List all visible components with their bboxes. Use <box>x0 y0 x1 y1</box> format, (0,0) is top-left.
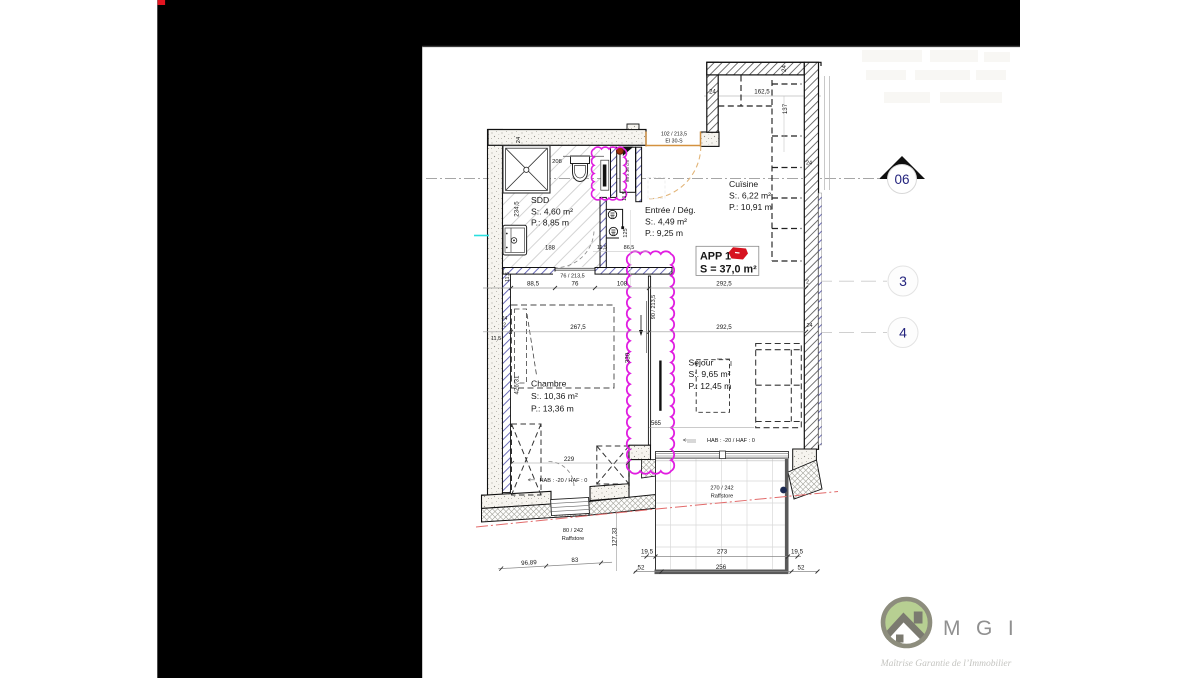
svg-text:90 / 213,5: 90 / 213,5 <box>651 295 657 319</box>
svg-text:EI 30-S: EI 30-S <box>665 139 683 145</box>
svg-text:19,5: 19,5 <box>641 549 654 556</box>
svg-text:108: 108 <box>617 281 628 288</box>
svg-text:24: 24 <box>806 161 812 167</box>
svg-text:S:. 6,22 m²: S:. 6,22 m² <box>729 191 771 201</box>
svg-text:S:. 4,60 m²: S:. 4,60 m² <box>531 207 573 217</box>
svg-text:292,5: 292,5 <box>716 324 732 331</box>
svg-text:Chambre: Chambre <box>531 379 567 389</box>
svg-text:24: 24 <box>516 136 522 143</box>
svg-text:88,5: 88,5 <box>527 281 540 288</box>
svg-text:208: 208 <box>552 159 562 165</box>
svg-text:P.: 10,91 m: P.: 10,91 m <box>729 202 772 212</box>
svg-text:MGI: MGI <box>943 617 1029 640</box>
svg-text:11,5: 11,5 <box>505 272 511 282</box>
svg-text:96,89: 96,89 <box>521 559 537 567</box>
svg-text:P.: 9,25 m: P.: 9,25 m <box>645 228 683 238</box>
svg-text:229: 229 <box>564 456 575 463</box>
svg-text:S:. 10,36 m²: S:. 10,36 m² <box>531 391 578 401</box>
svg-text:270 / 242: 270 / 242 <box>710 486 733 492</box>
svg-text:292,5: 292,5 <box>716 281 732 288</box>
svg-text:3: 3 <box>899 273 907 289</box>
svg-text:137: 137 <box>782 103 789 114</box>
svg-text:HAB : -20 / HAF : 0: HAB : -20 / HAF : 0 <box>540 478 588 484</box>
svg-text:52: 52 <box>798 565 805 572</box>
svg-text:11,5: 11,5 <box>491 336 501 342</box>
svg-text:267,5: 267,5 <box>570 324 586 331</box>
svg-text:SDD: SDD <box>531 195 549 205</box>
svg-text:2: 2 <box>806 280 809 286</box>
svg-text:S:. 9,65 m²: S:. 9,65 m² <box>689 369 731 379</box>
svg-text:APP 1: APP 1 <box>700 251 731 263</box>
svg-text:Cuïsine: Cuïsine <box>729 179 758 189</box>
svg-text:4: 4 <box>899 325 907 341</box>
svg-text:256: 256 <box>716 564 727 571</box>
svg-text:24: 24 <box>782 65 788 72</box>
svg-text:HAB : -20 / HAF : 0: HAB : -20 / HAF : 0 <box>707 438 755 444</box>
svg-text:06: 06 <box>894 172 909 187</box>
svg-text:11,5: 11,5 <box>622 191 628 201</box>
svg-text:273: 273 <box>717 549 728 556</box>
svg-text:188: 188 <box>545 246 556 252</box>
svg-text:24: 24 <box>806 323 812 329</box>
svg-text:83: 83 <box>571 557 579 564</box>
svg-text:11,5: 11,5 <box>597 245 607 251</box>
svg-text:80 / 242: 80 / 242 <box>563 528 583 534</box>
svg-text:52: 52 <box>638 565 645 572</box>
svg-text:Raffstore: Raffstore <box>711 494 734 500</box>
svg-text:426,31: 426,31 <box>514 375 521 394</box>
svg-text:P.: 8,85 m: P.: 8,85 m <box>531 218 569 228</box>
svg-text:S = 37,0 m²: S = 37,0 m² <box>700 264 757 276</box>
svg-text:24: 24 <box>709 90 716 96</box>
svg-text:127,33: 127,33 <box>612 527 619 546</box>
svg-text:125: 125 <box>623 228 629 237</box>
svg-text:330: 330 <box>625 352 632 363</box>
svg-text:76: 76 <box>572 281 579 288</box>
svg-text:98 x 36 cm: 98 x 36 cm <box>625 160 630 183</box>
svg-text:19,5: 19,5 <box>791 549 804 556</box>
svg-text:Entrée / Dég.: Entrée / Dég. <box>645 205 696 215</box>
svg-text:76 / 213,5: 76 / 213,5 <box>560 274 584 280</box>
svg-text:Raffstore: Raffstore <box>562 536 585 542</box>
svg-text:86,5: 86,5 <box>624 245 635 251</box>
svg-text:24: 24 <box>502 316 508 322</box>
svg-text:Maîtrise Garantie de l’Immobil: Maîtrise Garantie de l’Immobilier <box>880 659 1012 669</box>
svg-text:162,5: 162,5 <box>754 89 770 96</box>
svg-text:102 / 213,5: 102 / 213,5 <box>661 132 687 138</box>
svg-text:P.: 13,36 m: P.: 13,36 m <box>531 404 574 414</box>
svg-text:P.: 12,45 m: P.: 12,45 m <box>689 381 732 391</box>
svg-text:565: 565 <box>651 421 662 427</box>
svg-text:2: 2 <box>503 323 506 329</box>
svg-text:S:. 4,49 m²: S:. 4,49 m² <box>645 217 687 227</box>
svg-text:Séjour: Séjour <box>689 358 714 368</box>
svg-text:234,5: 234,5 <box>514 201 521 217</box>
